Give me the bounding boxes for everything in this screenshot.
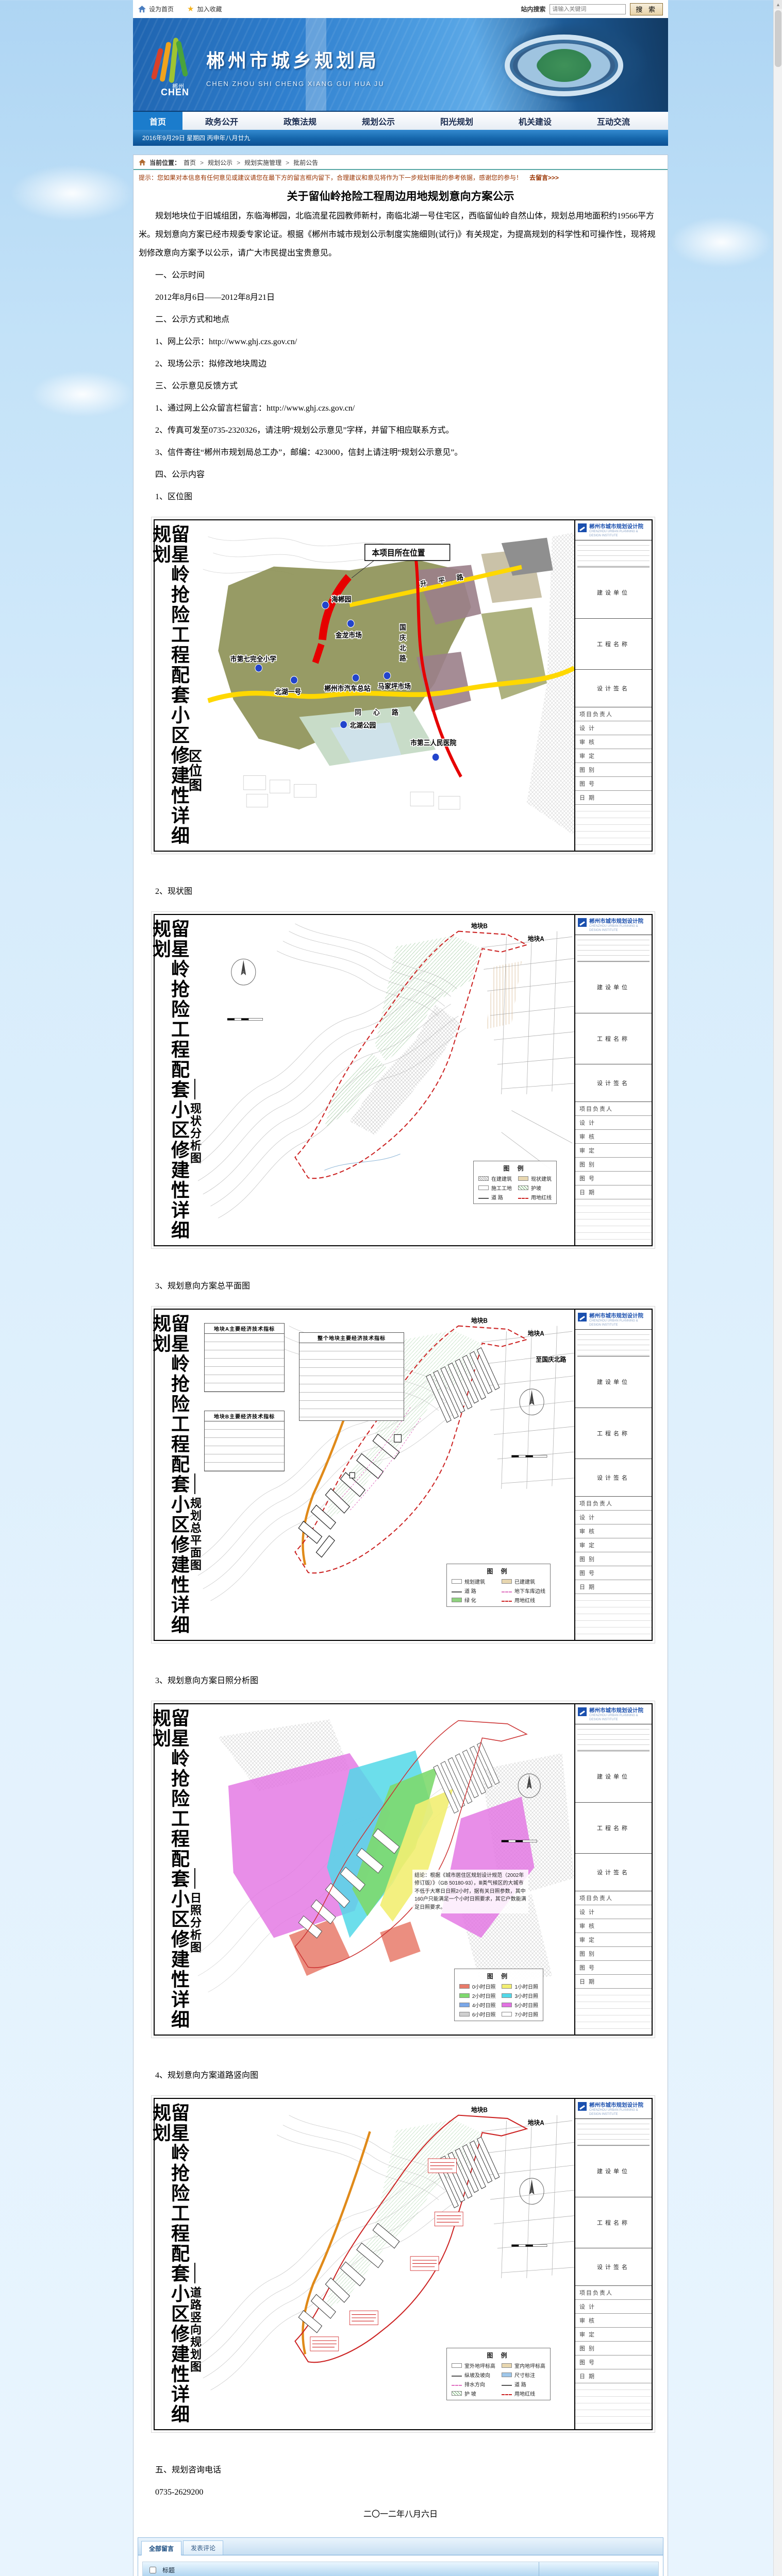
nav-item-interaction[interactable]: 互动交流 [574,112,653,130]
stadium-ring [505,35,623,96]
publicity-period: 2012年8月6日——2012年8月21日 [139,289,662,307]
legend-item: 排水方向 [464,2380,485,2388]
scrollbar-track[interactable]: ▲ ▼ [773,0,782,2576]
scale-bar [511,1455,547,1458]
scroll-up-arrow[interactable]: ▲ [774,0,782,9]
tb-filler [575,805,652,851]
comment-tabs: 全部留言 发表评论 [138,2538,663,2555]
map1-side-title: 留星岭抢险工程配套小区修建性详细规划 区位图 [155,520,198,851]
map5-plot-a-label: 地块A [528,2119,544,2127]
tb-checker: 审 核 [575,2314,652,2328]
legend-item: 0小时日照 [472,1982,496,1990]
content-box: 当前位置： 首页 > 规划公示 > 规划实施管理 > 批前公告 提示：您如果对本… [133,155,668,2576]
tb-approver: 审 定 [575,1144,652,1158]
article: 关于留仙岭抢险工程周边用地规划意向方案公示 规划地块位于旧城组团，东临海郴园，北… [134,188,668,2524]
institute-name: 郴州市城市规划设计院CHENZHOU URBAN PLANNING & DESI… [589,918,649,933]
map2-plot-b-label: 地块B [471,922,488,930]
tip-text: 提示：您如果对本信息有任何意见或建议请您在最下方的留言框内留下，合理建议和意见将… [139,173,522,182]
section-1-heading: 一、公示时间 [139,266,662,285]
map4-side-title: 留星岭抢险工程配套小区修建性详细规划 日照分析图 [155,1704,198,2035]
date-bar: 2016年9月29日 星期四 丙申年八月廿九 [133,130,668,146]
article-title: 关于留仙岭抢险工程周边用地规划意向方案公示 [139,188,662,204]
cloud-decor [31,371,134,417]
institute-name: 郴州市城市规划设计院CHENZHOU URBAN PLANNING & DESI… [589,2102,649,2116]
cloud-decor [10,165,134,222]
tb-date: 日 期 [575,2369,652,2383]
tb-owner: 建设单位 [575,962,652,1013]
map-road-vertical-figure: 留星岭抢险工程配套小区修建性详细规划 道路竖向规划图 [151,2095,655,2433]
tb-date: 日 期 [575,1185,652,1199]
add-favorite-link[interactable]: ★ 加入收藏 [187,5,222,13]
fig5-heading: 4、规划意向方案道路竖向图 [139,2066,662,2085]
map3-side-title: 留星岭抢险工程配套小区修建性详细规划 规划总平面图 [155,1310,198,1640]
map3-legend: 图 例 规划建筑 已建建筑 道 路 地下车库边线 绿 化 用地红线 [446,1564,551,1607]
set-home-label: 设为首页 [149,5,174,13]
breadcrumb-item-pre-approval[interactable]: 批前公告 [293,158,318,167]
tb-number: 图 号 [575,777,652,791]
tb-designer: 设 计 [575,1905,652,1919]
map1-canvas: 本项目所在位置 海郴园 金龙市场 市第七完全小学 北湖一号 郴州市汽车总站 [198,520,574,851]
nav-item-plan-publicity[interactable]: 规划公示 [339,112,418,130]
tb-category: 图 别 [575,1947,652,1961]
breadcrumb-item-home[interactable]: 首页 [184,158,196,167]
legend-item: 7小时日照 [514,2010,538,2018]
tb-owner: 建设单位 [575,2146,652,2197]
tb-checker: 审 核 [575,1524,652,1538]
tab-all-comments[interactable]: 全部留言 [141,2541,181,2555]
legend-item: 6小时日照 [472,2010,496,2018]
tb-approver: 审 定 [575,1933,652,1947]
breadcrumb-sep: > [286,159,289,166]
legend-item: 地下车库边线 [514,1587,545,1595]
comment-table-header: 标题 [143,2562,658,2576]
legend-item: 护坡 [531,1184,541,1192]
tb-designer: 设 计 [575,1511,652,1524]
site-title: 郴州市城乡规划局 [206,46,385,73]
institute-logo-icon [578,523,587,532]
label-no7-school: 市第七完全小学 [230,655,276,664]
compass-icon [520,1389,544,1415]
tb-date: 日 期 [575,1975,652,1989]
tb-category: 图 别 [575,763,652,777]
label-majiaping-market: 马家坪市场 [378,682,411,690]
map3-road-to-label: 至国庆北路 [536,1355,567,1364]
eco-table-all-title: 整个地块主要经济技术指标 [300,1333,404,1343]
legend-item: 用地红线 [514,1596,535,1604]
tb-filler [575,1594,652,1640]
map4-titleblock: 郴州市城市规划设计院CHENZHOU URBAN PLANNING & DESI… [574,1704,652,2035]
institute-name: 郴州市城市规划设计院CHENZHOU URBAN PLANNING & DESI… [589,1313,649,1327]
feedback-fax-line: 2、传真可发至0735-2320326，请注明“规划公示意见”字样，并留下相应联… [139,421,662,440]
search-button[interactable]: 搜 索 [630,3,663,15]
map5-side-title: 留星岭抢险工程配套小区修建性详细规划 道路竖向规划图 [155,2099,198,2429]
legend-item: 2小时日照 [472,1992,496,1999]
tb-project: 工程名称 [575,1803,652,1854]
eco-table-all: 整个地块主要经济技术指标 [299,1332,404,1421]
tb-project: 工程名称 [575,619,652,670]
scale-bar [511,2245,547,2247]
tb-owner: 建设单位 [575,1357,652,1408]
tb-leader: 项目负责人 [575,707,652,721]
page-column: 设为首页 ★ 加入收藏 站内搜索 搜 索 郴州 CHEN 郴州市城乡规划局 CH… [133,0,668,2576]
map2-canvas: 地块B 地块A 图 例 在建建筑 现状建筑 施工工地 护坡 道 路 用 [198,915,574,1245]
map3-title-vertical: 留星岭抢险工程配套小区修建性详细规划 [151,1314,188,1636]
label-guoqing-road: 国庆北路 [398,623,406,665]
home-icon [138,6,146,13]
legend-item: 现状建筑 [531,1175,552,1182]
tb-filler [575,1199,652,1245]
extra-column-header [539,2562,658,2576]
tb-project: 工程名称 [575,2197,652,2248]
legend-item: 纵坡及坡向 [464,2371,490,2379]
go-comment-link[interactable]: 去留言>>> [529,173,559,182]
project-callout-label: 本项目所在位置 [372,548,425,558]
legend-item: 施工工地 [491,1184,512,1192]
legend-item: 在建建筑 [491,1175,512,1182]
legend-item: 1小时日照 [514,1982,538,1990]
utility-bar: 设为首页 ★ 加入收藏 站内搜索 搜 索 [133,0,668,18]
label-beihu-park: 北湖公园 [350,721,376,730]
tb-signature: 设计签名 [575,1064,652,1102]
legend-item: 5小时日照 [514,2001,538,2009]
tb-leader: 项目负责人 [575,2286,652,2300]
section-2-heading: 二、公示方式和地点 [139,311,662,329]
legend-item: 尺寸标注 [514,2371,535,2379]
breadcrumb-item-publicity[interactable]: 规划公示 [208,158,232,167]
set-home-link[interactable]: 设为首页 [138,5,174,13]
cloud-decor [670,216,773,268]
institute-name: 郴州市城市规划设计院CHENZHOU URBAN PLANNING & DESI… [589,1707,649,1722]
label-bus-station: 郴州市汽车总站 [324,684,370,693]
bureau-logo: 郴州 CHEN [152,37,197,93]
tb-checker: 审 核 [575,1919,652,1933]
nav-item-home[interactable]: 首页 [133,112,182,130]
sunshine-conclusion-note: 结论：根据《城市居住区规划设计规范（2002年修订版）》（GB 50180-93… [412,1870,528,1914]
map1-title-vertical: 留星岭抢险工程配套小区修建性详细规划 [151,524,188,846]
tb-filler [575,2383,652,2429]
tb-owner: 建设单位 [575,1751,652,1802]
tb-approver: 审 定 [575,749,652,763]
online-publicity-line: 1、网上公示：http://www.ghj.czs.gov.cn/ [139,333,662,351]
fig3-heading: 3、规划意向方案总平面图 [139,1277,662,1296]
map4-canvas: 结论：根据《城市居住区规划设计规范（2002年修订版）》（GB 50180-93… [198,1704,574,2035]
legend-item: 室外地坪标高 [464,2362,495,2369]
map5-titleblock: 郴州市城市规划设计院CHENZHOU URBAN PLANNING & DESI… [574,2099,652,2429]
legend-item: 用地红线 [531,1193,552,1201]
map2-legend-title: 图 例 [478,1164,552,1173]
label-haichenyuan: 海郴园 [331,595,351,604]
tb-signature: 设计签名 [575,1854,652,1891]
tb-project: 工程名称 [575,1408,652,1459]
map5-legend: 图 例 室外地坪标高 室内地坪标高 纵坡及坡向 尺寸标注 排水方向 道 路 护 … [446,2348,551,2400]
breadcrumb-sep: > [200,159,204,166]
stadium-photo [421,18,668,111]
tb-designer: 设 计 [575,1116,652,1130]
breadcrumb-home-icon [139,159,146,166]
tb-number: 图 号 [575,1961,652,1975]
map5-canvas: 地块B 地块A 图 例 室外地坪标高 室内地坪标高 纵坡及坡向 尺寸标注 排水方… [198,2099,574,2429]
section-4-heading: 四、公示内容 [139,466,662,484]
tb-leader: 项目负责人 [575,1102,652,1116]
tb-approver: 审 定 [575,1538,652,1552]
scale-bar [502,1840,537,1842]
article-intro: 规划地块位于旧城组团，东临海郴园，北临流星花园教师新村，南临北湖一号住宅区，西临… [139,207,662,263]
map4-legend-title: 图 例 [459,1972,538,1980]
title-column-header: 标题 [162,2566,539,2574]
tip-row: 提示：您如果对本信息有任何意见或建议请您在最下方的留言框内留下，合理建议和意见将… [134,170,668,183]
compass-icon [520,2178,544,2205]
tb-approver: 审 定 [575,2328,652,2342]
institute-logo-icon [578,918,587,927]
feedback-online-line: 1、通过网上公众留言栏留言：http://www.ghj.czs.gov.cn/ [139,399,662,418]
breadcrumb: 当前位置： 首页 > 规划公示 > 规划实施管理 > 批前公告 [134,155,668,170]
tb-designer: 设 计 [575,2300,652,2314]
tb-filler [575,1989,652,2035]
eco-table-plot-a: 地块A主要经济技术指标 [204,1323,285,1392]
legend-item: 道 路 [464,1587,476,1595]
tb-date: 日 期 [575,791,652,805]
map3-canvas: 地块B 地块A 至国庆北路 地块A主要经济技术指标 地块B主要经济技术指标 [198,1310,574,1640]
legend-item: 绿 化 [464,1596,476,1604]
tb-designer: 设 计 [575,721,652,735]
fig1-heading: 1、区位图 [139,488,662,506]
label-tongxin-road: 同 心 路 [355,708,403,717]
tb-project: 工程名称 [575,1013,652,1064]
titleblock-meta [577,540,650,567]
tb-leader: 项目负责人 [575,1891,652,1905]
map2-legend: 图 例 在建建筑 现状建筑 施工工地 护坡 道 路 用地红线 [473,1161,557,1204]
comment-table: 标题 暂无数据 10 ▼ [142,2562,659,2576]
compass-icon [231,959,256,985]
eco-table-plot-b: 地块B主要经济技术指标 [204,1411,285,1471]
breadcrumb-label: 当前位置： [149,158,180,167]
breadcrumb-sep: > [237,159,240,166]
map3-plot-a-label: 地块A [528,1329,544,1337]
institute-logo-icon [578,1707,587,1716]
label-beihu-no1: 北湖一号 [275,688,301,696]
fig2-heading: 2、现状图 [139,883,662,901]
legend-item: 用地红线 [514,2389,535,2397]
map-status-figure: 留星岭抢险工程配套小区修建性详细规划 现状分析图 [151,911,655,1249]
map3-legend-title: 图 例 [452,1567,545,1575]
map1-drawing: 本项目所在位置 海郴园 金龙市场 市第七完全小学 北湖一号 郴州市汽车总站 [198,520,574,851]
tb-signature: 设计签名 [575,1459,652,1497]
map2-side-title: 留星岭抢险工程配套小区修建性详细规划 现状分析图 [155,915,198,1245]
label-jinlong-market: 金龙市场 [335,631,362,639]
map5-plot-b-label: 地块B [471,2106,488,2114]
eco-table-a-title: 地块A主要经济技术指标 [205,1324,284,1334]
map4-legend: 图 例 0小时日照 1小时日照 2小时日照 3小时日照 4小时日照 5小时日照 … [454,1969,543,2021]
legend-item: 3小时日照 [514,1992,538,1999]
breadcrumb-item-implement[interactable]: 规划实施管理 [244,158,281,167]
map3-plot-b-label: 地块B [471,1316,488,1325]
site-banner: 郴州 CHEN 郴州市城乡规划局 CHEN ZHOU SHI CHENG XIA… [133,18,668,111]
tb-leader: 项目负责人 [575,1497,652,1511]
consult-phone: 0735-2629200 [139,2483,662,2502]
site-title-pinyin: CHEN ZHOU SHI CHENG XIANG GUI HUA JU [206,80,385,88]
legend-item: 规划建筑 [464,1578,485,1585]
institute-name: 郴州市城市规划设计院CHENZHOU URBAN PLANNING & DESI… [589,523,649,538]
scrollbar-thumb[interactable] [775,10,781,67]
map-sunshine-figure: 留星岭抢险工程配套小区修建性详细规划 日照分析图 [151,1701,655,2038]
tb-category: 图 别 [575,2342,652,2355]
sign-date: 二〇一二年八月六日 [139,2505,662,2524]
nav-item-sunshine-plan[interactable]: 阳光规划 [418,112,496,130]
legend-item: 4小时日照 [472,2001,496,2009]
legend-item: 道 路 [491,1193,503,1201]
main-nav: 首页 政务公开 政策法规 规划公示 阳光规划 机关建设 互动交流 [133,111,668,130]
institute-logo-icon [578,1313,587,1321]
tb-signature: 设计签名 [575,2248,652,2286]
map3-titleblock: 郴州市城市规划设计院CHENZHOU URBAN PLANNING & DESI… [574,1310,652,1640]
select-all-checkbox[interactable] [149,2567,156,2573]
search-input[interactable] [550,4,626,14]
tb-date: 日 期 [575,1580,652,1594]
map2-title-vertical: 留星岭抢险工程配套小区修建性详细规划 [151,919,188,1241]
map5-title-vertical: 留星岭抢险工程配套小区修建性详细规划 [151,2103,188,2425]
nav-item-gov-info[interactable]: 政务公开 [182,112,261,130]
legend-item: 护 坡 [464,2389,476,2397]
tab-post-comment[interactable]: 发表评论 [183,2540,223,2555]
feedback-mail-line: 3、信件寄往“郴州市规划局总工办”，邮编：423000，信封上请注明“规划公示意… [139,444,662,462]
tb-category: 图 别 [575,1552,652,1566]
label-no3-hospital: 市第三人民医院 [410,738,457,747]
fig4-heading: 3、规划意向方案日照分析图 [139,1672,662,1690]
map5-legend-title: 图 例 [452,2351,545,2360]
legend-item: 室内地坪标高 [514,2362,545,2369]
comment-widget: 全部留言 发表评论 标题 暂无数据 10 [138,2537,663,2576]
section-5-heading: 五、规划咨询电话 [139,2461,662,2480]
eco-table-b-title: 地块B主要经济技术指标 [205,1411,284,1421]
tb-owner: 建设单位 [575,567,652,618]
tb-category: 图 别 [575,1158,652,1172]
section-3-heading: 三、公示意见反馈方式 [139,377,662,396]
map-masterplan-figure: 留星岭抢险工程配套小区修建性详细规划 规划总平面图 [151,1306,655,1643]
site-brand: 郴州 CHEN 郴州市城乡规划局 CHEN ZHOU SHI CHENG XIA… [152,37,385,93]
site-publicity-line: 2、现场公示：拟修改地块周边 [139,355,662,374]
site-search-label: 站内搜索 [521,5,545,13]
tb-number: 图 号 [575,2355,652,2369]
logo-en-text: CHEN [161,87,189,98]
map2-plot-a-label: 地块A [528,935,544,943]
map4-title-vertical: 留星岭抢险工程配套小区修建性详细规划 [151,1708,188,2030]
add-favorite-label: 加入收藏 [197,5,222,13]
map-location-figure: 留星岭抢险工程配套小区修建性详细规划 区位图 [151,517,655,854]
scale-bar [227,1018,263,1020]
map2-titleblock: 郴州市城市规划设计院CHENZHOU URBAN PLANNING & DESI… [574,915,652,1245]
legend-item: 道 路 [514,2380,526,2388]
tb-signature: 设计签名 [575,670,652,707]
tb-number: 图 号 [575,1566,652,1580]
nav-item-policy[interactable]: 政策法规 [261,112,339,130]
institute-logo-icon [578,2102,587,2111]
tb-number: 图 号 [575,1172,652,1185]
legend-item: 已建建筑 [514,1578,535,1585]
tb-checker: 审 核 [575,735,652,749]
tb-checker: 审 核 [575,1130,652,1144]
map1-titleblock: 郴州市城市规划设计院CHENZHOU URBAN PLANNING & DESI… [574,520,652,851]
nav-item-agency[interactable]: 机关建设 [496,112,574,130]
star-icon: ★ [187,5,194,13]
